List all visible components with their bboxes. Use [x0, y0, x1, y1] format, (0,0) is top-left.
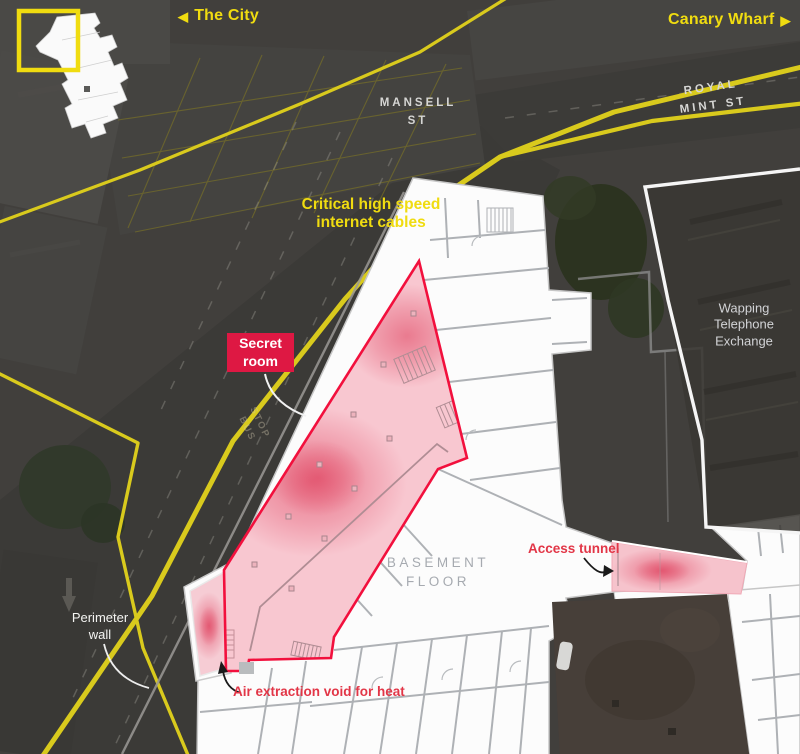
nav-canary-wharf: Canary Wharf ▶	[668, 11, 791, 29]
left-arrow-icon: ◀	[178, 9, 188, 25]
courtyard	[552, 594, 750, 754]
mansell-st-label: MANSELL ST	[380, 94, 457, 131]
wapping-exchange-label: Wapping Telephone Exchange	[714, 301, 774, 350]
road-arrow-stem	[66, 578, 72, 596]
nav-the-city: ◀ The City	[178, 7, 259, 25]
bottom-edge-gray-box	[239, 662, 254, 674]
map-stage: ◀ The City Canary Wharf ▶ MANSELL ST ROY…	[0, 0, 800, 754]
perimeter-wall-label: Perimeter wall	[72, 610, 128, 644]
secret-room-badge: Secret room	[227, 333, 294, 372]
nav-the-city-label: The City	[194, 7, 259, 25]
secret-room-badge-label: Secret room	[239, 335, 282, 370]
basement-floor-label: BASEMENT FLOOR	[387, 554, 489, 592]
nav-canary-wharf-label: Canary Wharf	[668, 11, 774, 29]
right-arrow-icon: ▶	[780, 13, 790, 29]
air-extraction-label: Air extraction void for heat	[233, 684, 405, 699]
access-tunnel-label: Access tunnel	[528, 541, 620, 556]
internet-cables-label: Critical high speed internet cables	[302, 196, 441, 232]
